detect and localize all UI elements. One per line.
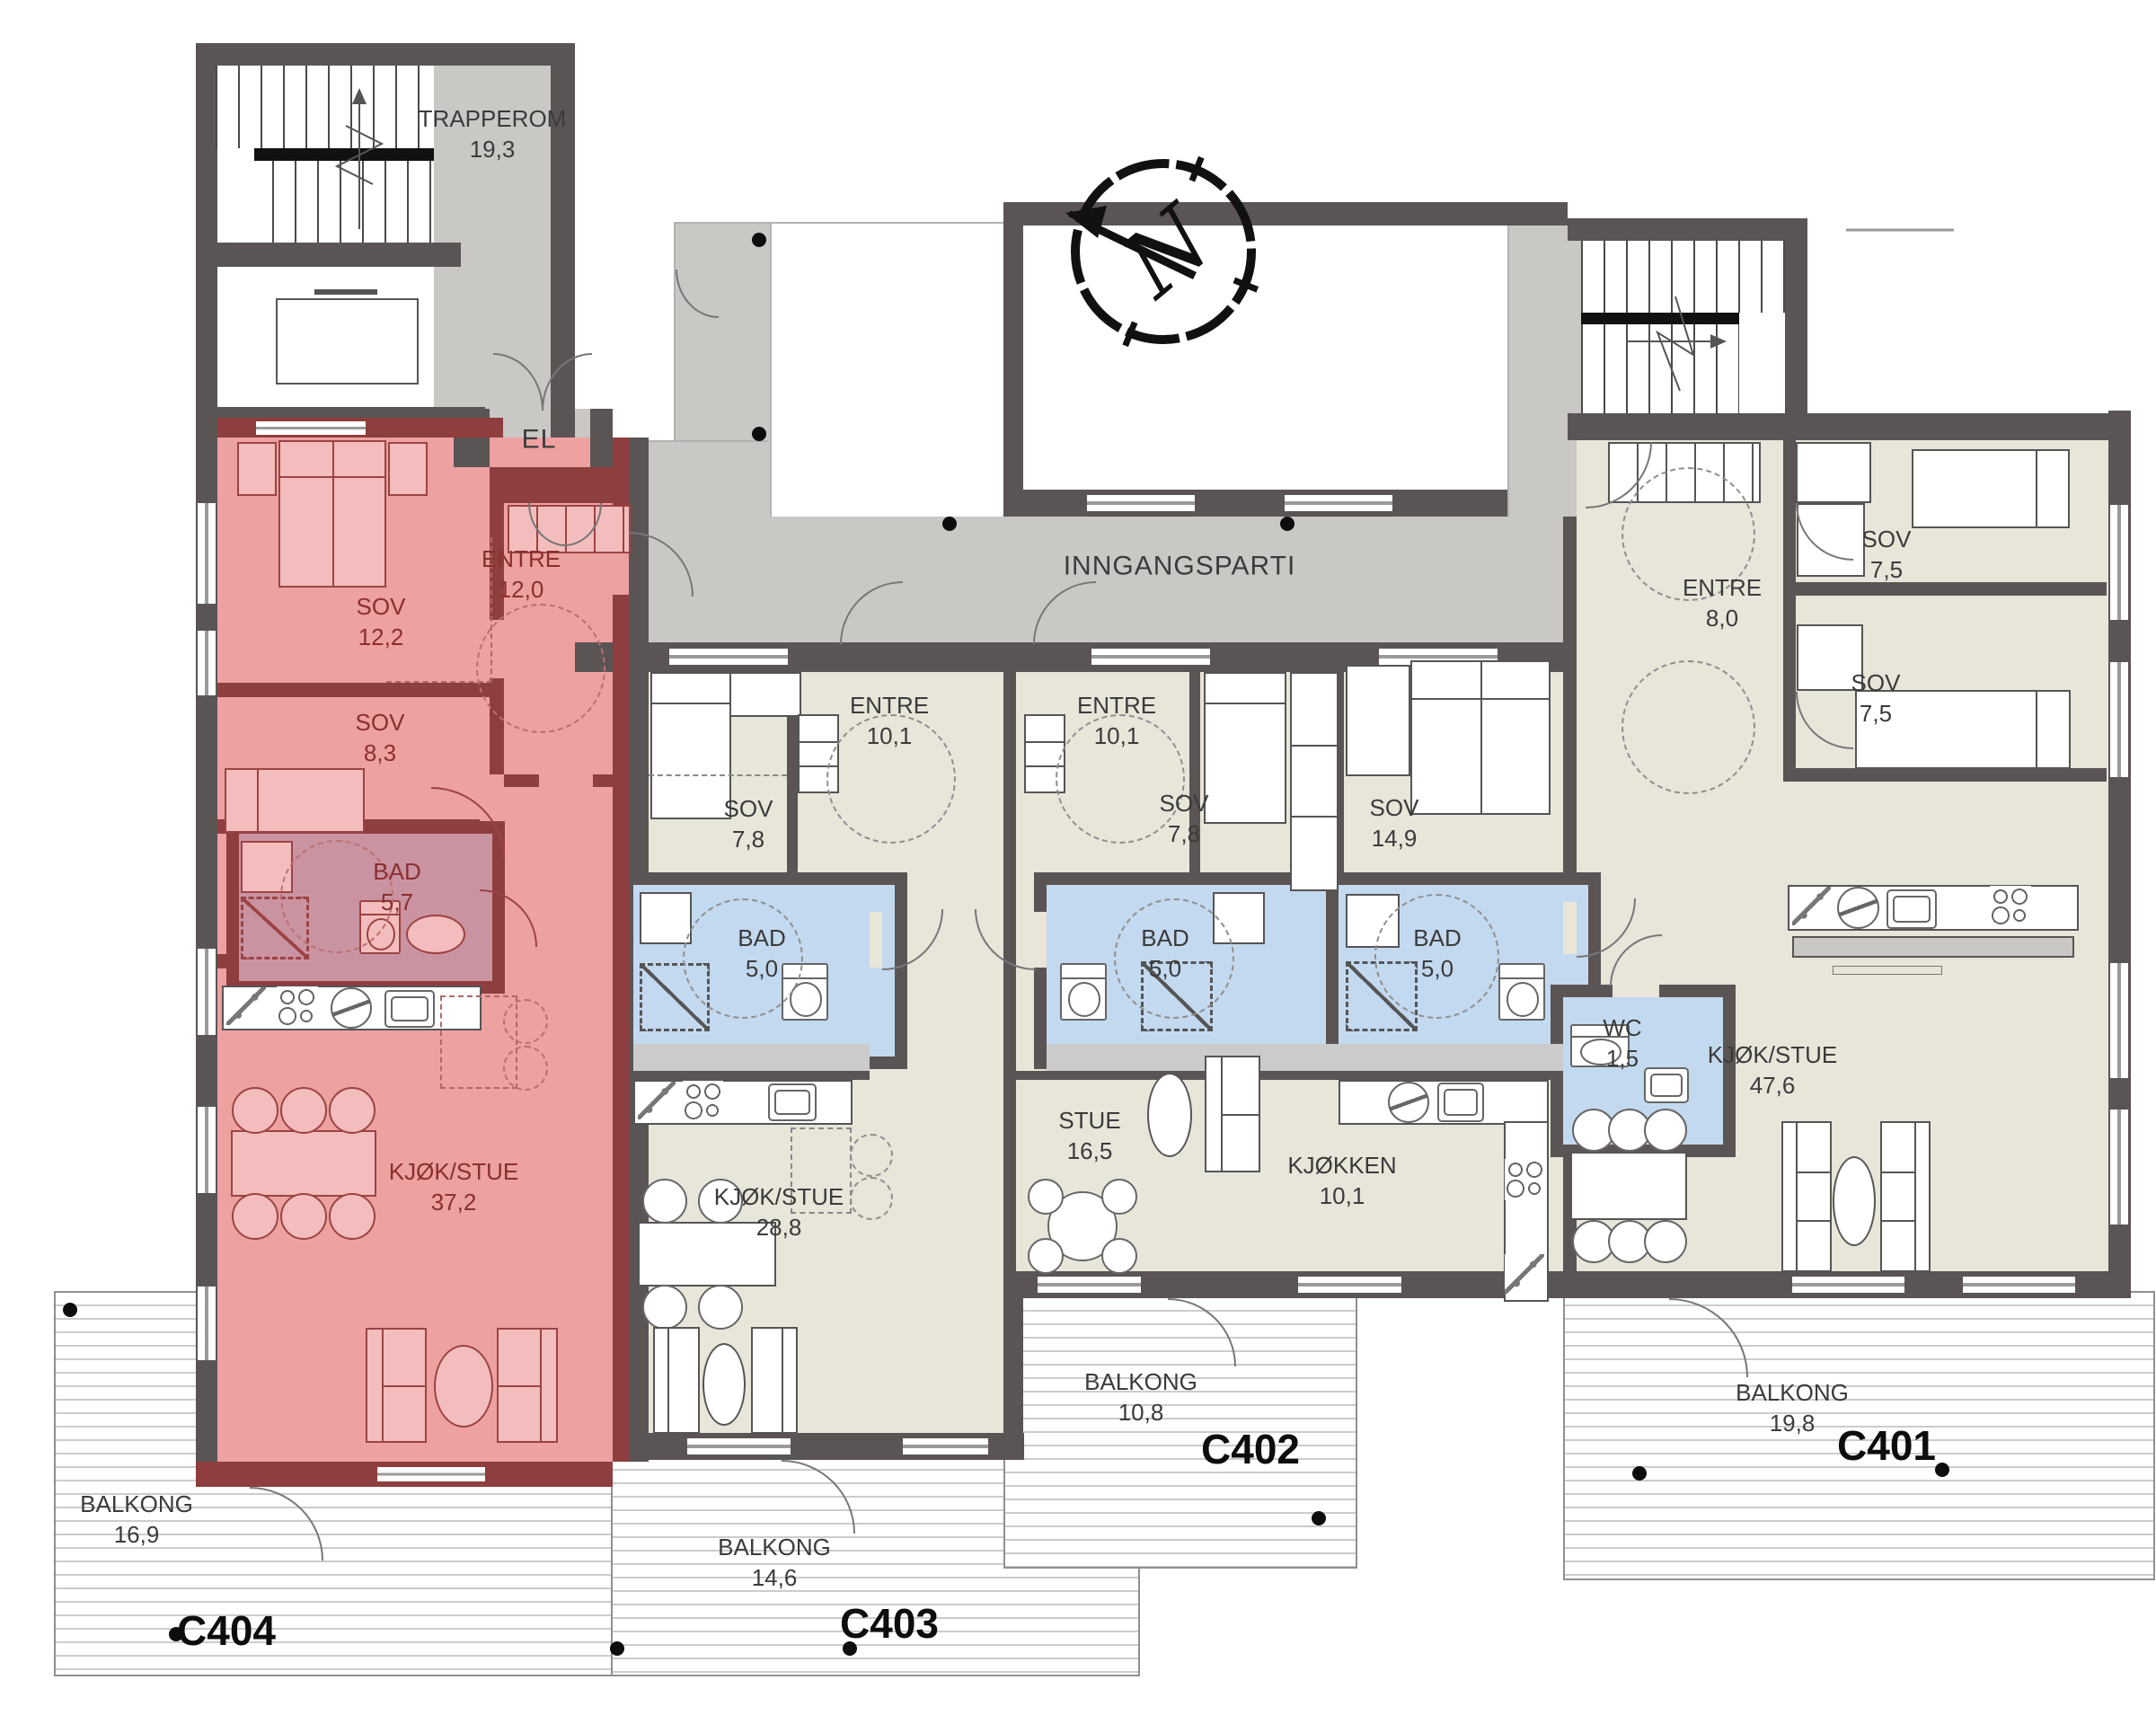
red-wall [490, 467, 629, 503]
chair [1028, 1238, 1064, 1274]
shelf [1833, 966, 1942, 975]
bathroom-sink [406, 915, 465, 954]
stool-dashed [503, 1046, 548, 1091]
turning-circle [476, 604, 605, 733]
window [2110, 662, 2128, 777]
trapperom-floor [434, 63, 551, 409]
courtyard [768, 222, 1007, 520]
compass-north-letter: N [1101, 184, 1233, 318]
turning-circle [1374, 894, 1499, 1019]
window [198, 1107, 216, 1193]
wall [196, 43, 217, 1487]
nightstand [388, 442, 428, 496]
column-dot [610, 1641, 624, 1656]
column-dot [752, 233, 766, 247]
coffee-table [434, 1345, 493, 1428]
sofa [366, 1328, 427, 1443]
bed-double [1410, 660, 1551, 815]
toilet [1498, 963, 1545, 1021]
chair [1028, 1179, 1064, 1215]
stove-icon [1505, 1159, 1544, 1200]
window [2110, 505, 2128, 620]
red-wall [217, 683, 496, 697]
dishwasher-icon [1792, 887, 1831, 925]
wc-sink [1644, 1067, 1689, 1103]
wall [196, 43, 575, 66]
column-dot [752, 427, 766, 441]
stool-dashed [850, 1134, 893, 1177]
chair [280, 1087, 327, 1134]
window [256, 421, 366, 435]
closet [729, 672, 801, 717]
toilet [1570, 1024, 1630, 1067]
column-dot [63, 1303, 77, 1317]
window [1963, 1277, 2075, 1293]
window [669, 649, 788, 665]
column-dot [843, 1641, 857, 1656]
window [1038, 1277, 1141, 1293]
chair [642, 1179, 687, 1224]
turning-circle [280, 840, 393, 953]
door-gap [870, 912, 882, 968]
window [1846, 224, 1954, 236]
chair [698, 1285, 743, 1330]
wall-c403-c402 [1003, 669, 1016, 1298]
window [1087, 495, 1195, 511]
compass-north-icon: N [1051, 139, 1276, 364]
wardrobe-column [1290, 672, 1339, 891]
door-gap [539, 774, 593, 787]
stairs-right-arrow [1608, 247, 1743, 409]
wall [1003, 202, 1023, 517]
stove-icon [1990, 886, 2031, 926]
window [2110, 963, 2128, 1078]
column-dot [169, 1627, 183, 1641]
window [1298, 1277, 1401, 1293]
stove-icon [277, 986, 318, 1026]
floor-plan: N TRAPPEROM 19,3ELINNGANGSPARTISOV 12,2E… [0, 0, 2156, 1733]
bed-single [1855, 690, 2071, 769]
window [687, 1438, 791, 1454]
turning-circle [683, 898, 803, 1019]
bed-single [225, 768, 365, 833]
stove-icon [683, 1081, 723, 1120]
sofa [1880, 1121, 1931, 1272]
turning-circle [1056, 714, 1185, 844]
closet [1346, 665, 1410, 776]
chair [698, 1179, 743, 1224]
dishwasher-icon [1505, 1254, 1544, 1294]
chair [232, 1193, 278, 1240]
turning-circle [1621, 467, 1755, 601]
bathroom-sink-cab [640, 892, 692, 944]
wardrobe [1796, 442, 1871, 503]
shaft [1047, 1044, 1563, 1071]
closet [1797, 624, 1863, 691]
chair [280, 1193, 327, 1240]
hob-icon [1388, 1082, 1429, 1123]
dishwasher-icon [226, 987, 266, 1025]
toilet [1060, 963, 1107, 1021]
column-dot [1280, 517, 1294, 531]
dining-table [638, 1222, 776, 1286]
side-table [1147, 1073, 1192, 1157]
window [2110, 1110, 2128, 1225]
wall [1189, 669, 1200, 885]
wall [1796, 582, 2107, 596]
column-dot [1312, 1511, 1326, 1525]
dining-table [1570, 1152, 1687, 1220]
turning-circle [826, 714, 956, 844]
hob-icon [1837, 887, 1879, 929]
door-gap [1563, 902, 1577, 954]
elevator-door-mark [314, 289, 377, 295]
wall [1783, 768, 2107, 782]
sofa [1781, 1121, 1832, 1272]
sink-icon [1886, 889, 1937, 929]
coffee-table [702, 1343, 746, 1426]
turning-circle [1114, 898, 1234, 1019]
door-gap [1613, 985, 1659, 997]
wall [1785, 218, 1807, 413]
bed-single [1912, 449, 2070, 528]
dishwasher-icon [638, 1082, 676, 1119]
window [903, 1438, 988, 1454]
chair [1644, 1220, 1687, 1263]
wall [633, 1071, 870, 1080]
sink-icon [768, 1083, 817, 1121]
elevator [276, 298, 419, 385]
entry-walkway-right [1507, 225, 1586, 517]
sofa [751, 1327, 798, 1434]
wall [590, 409, 613, 467]
window [1285, 495, 1392, 511]
chair [329, 1193, 376, 1240]
dining-table [231, 1130, 376, 1197]
stairs-left-arrow [296, 72, 422, 238]
balcony-c401 [1563, 1291, 2155, 1580]
column-dot [1935, 1463, 1949, 1477]
window [198, 631, 216, 695]
chair [1644, 1109, 1687, 1152]
bed-single [650, 672, 731, 819]
chair [1101, 1179, 1137, 1215]
bed-double [278, 440, 386, 588]
sov-opening-dashed [649, 774, 787, 778]
column-dot [942, 517, 957, 531]
wall-c401-north [1568, 413, 2108, 440]
wall [1016, 1071, 1563, 1080]
sofa [1205, 1056, 1260, 1172]
chair [1101, 1238, 1137, 1274]
wall [1783, 438, 1796, 768]
stool-dashed [850, 1177, 893, 1220]
chair [642, 1285, 687, 1330]
wall-c403-east-low [1003, 1298, 1023, 1433]
coffee-table [1833, 1156, 1876, 1246]
hob-icon [331, 987, 372, 1029]
kitchen-bar [1792, 936, 2074, 958]
turning-circle [1621, 660, 1755, 794]
stool-dashed [503, 999, 548, 1044]
sofa [653, 1327, 700, 1434]
chair [329, 1087, 376, 1134]
window [198, 949, 216, 1035]
chair [232, 1087, 278, 1134]
sofa [497, 1328, 558, 1443]
window-balcony-door-c404 [377, 1467, 485, 1481]
wall [216, 243, 461, 267]
bed-single [1204, 672, 1286, 824]
shaft [633, 1044, 870, 1071]
door-gap [1034, 912, 1047, 968]
window [1792, 1277, 1904, 1293]
window [1091, 649, 1210, 665]
kitchen-island-dashed [791, 1127, 852, 1214]
window [198, 503, 216, 604]
nightstand [237, 442, 277, 496]
wall [1568, 218, 1807, 241]
window [198, 1286, 216, 1360]
column-dot [1632, 1466, 1647, 1481]
sink-icon [384, 990, 435, 1028]
sink-icon [1437, 1083, 1484, 1122]
